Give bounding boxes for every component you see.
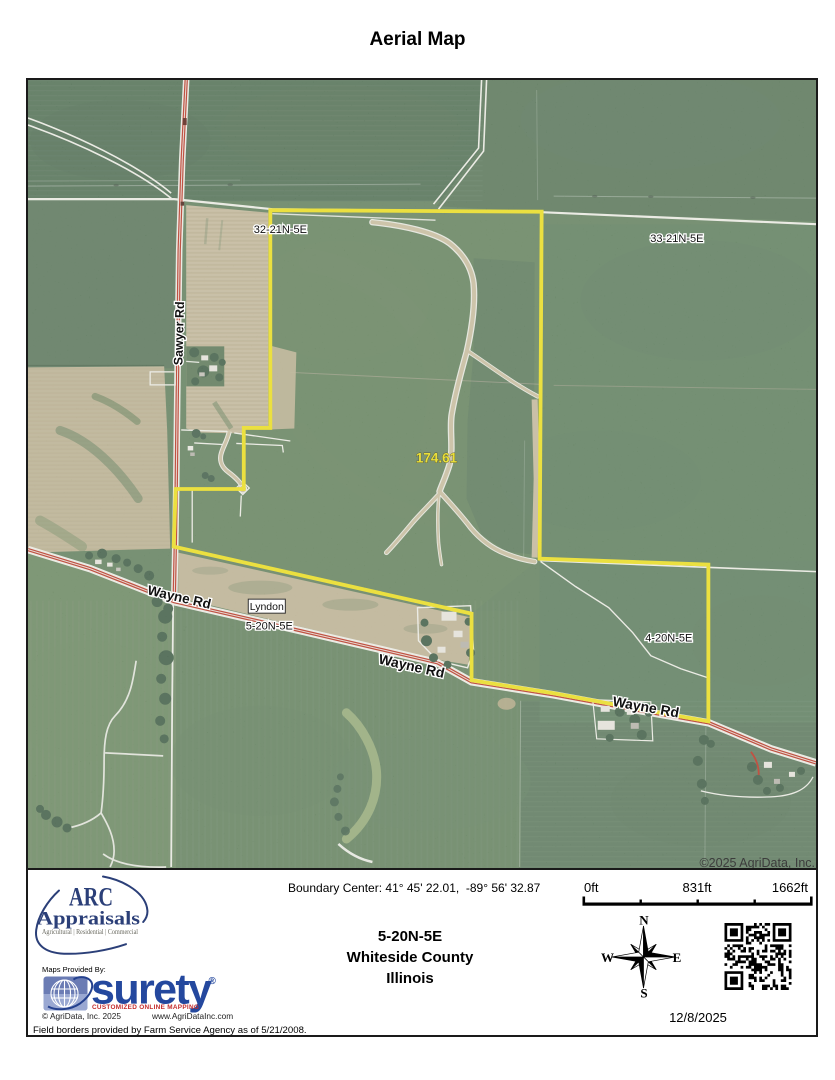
svg-text:Lyndon: Lyndon xyxy=(250,601,284,613)
svg-text:©2025 AgriData, Inc.: ©2025 AgriData, Inc. xyxy=(699,856,815,868)
svg-text:Agricultural | Residential | C: Agricultural | Residential | Commercial xyxy=(42,929,138,936)
svg-text:831ft: 831ft xyxy=(683,880,712,895)
svg-text:N: N xyxy=(639,916,649,928)
svg-text:W: W xyxy=(601,950,614,965)
svg-text:®: ® xyxy=(209,976,217,987)
svg-text:5-20N-5E: 5-20N-5E xyxy=(246,621,293,633)
svg-text:4-20N-5E: 4-20N-5E xyxy=(645,633,692,645)
svg-text:Appraisals: Appraisals xyxy=(37,909,140,930)
svg-text:33-21N-5E: 33-21N-5E xyxy=(650,233,703,245)
svg-text:0ft: 0ft xyxy=(584,880,599,895)
svg-text:ARC: ARC xyxy=(69,883,113,912)
svg-text:1662ft: 1662ft xyxy=(772,880,809,895)
svg-text:CUSTOMIZED ONLINE MAPPING: CUSTOMIZED ONLINE MAPPING xyxy=(92,1004,199,1011)
svg-text:S: S xyxy=(640,986,647,1001)
svg-text:174.61: 174.61 xyxy=(416,450,458,465)
svg-text:E: E xyxy=(673,950,682,965)
svg-text:32-21N-5E: 32-21N-5E xyxy=(254,224,307,236)
svg-text:Sawyer Rd: Sawyer Rd xyxy=(171,301,187,365)
